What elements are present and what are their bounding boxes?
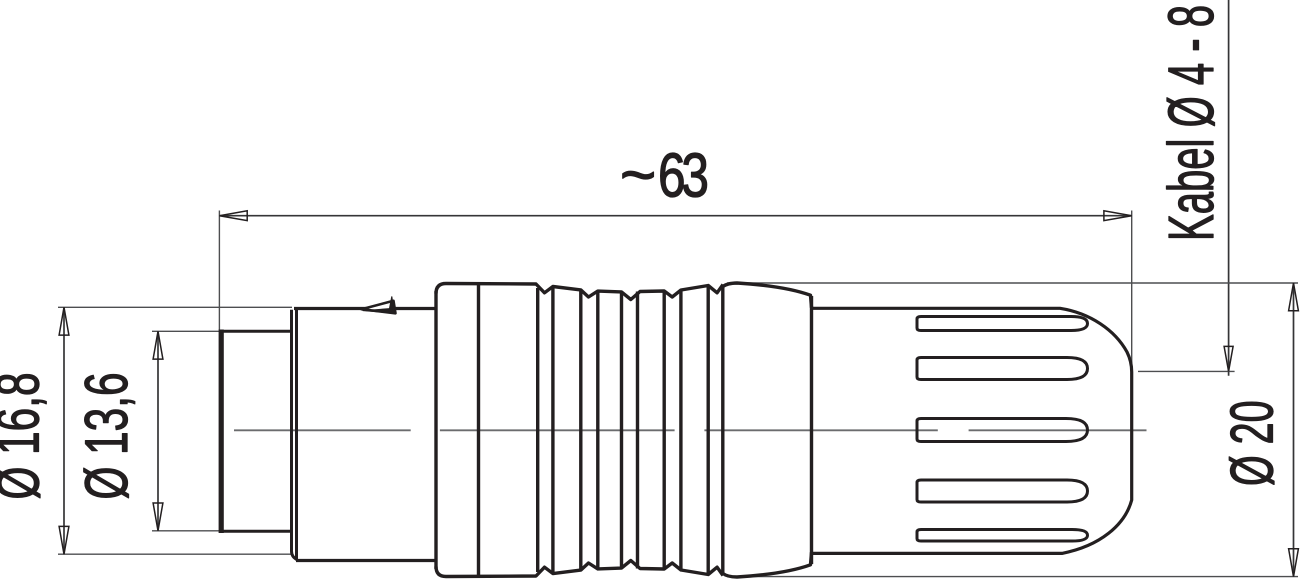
svg-text:Ø 16,8: Ø 16,8 [0,373,52,500]
svg-text:~: ~ [620,141,656,210]
svg-text:Ø 20: Ø 20 [1219,401,1286,487]
svg-text:Kabel Ø 4 - 8: Kabel Ø 4 - 8 [1155,5,1227,241]
svg-text:3: 3 [681,140,709,210]
svg-text:Ø 13,6: Ø 13,6 [73,373,140,500]
